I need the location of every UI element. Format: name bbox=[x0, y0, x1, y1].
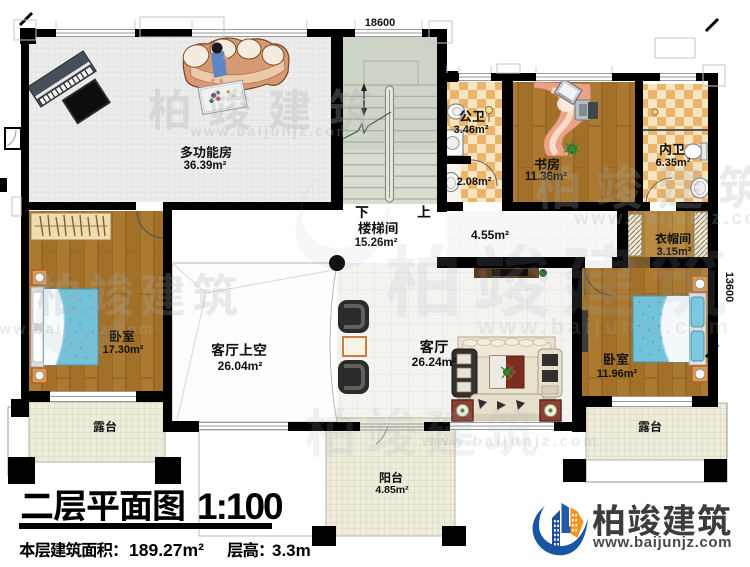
svg-text:www.baijunjz.com: www.baijunjz.com bbox=[592, 534, 732, 551]
svg-text:2.08m²: 2.08m² bbox=[457, 176, 492, 188]
svg-text:26.24m²: 26.24m² bbox=[412, 355, 457, 369]
svg-text:18600: 18600 bbox=[365, 17, 396, 29]
svg-text:3.3m: 3.3m bbox=[272, 541, 311, 560]
svg-text:3.46m²: 3.46m² bbox=[454, 124, 489, 136]
svg-text:www.baijunjz.com: www.baijunjz.com bbox=[573, 208, 750, 228]
svg-text:www.baijunjz.com: www.baijunjz.com bbox=[477, 314, 732, 339]
svg-text:4.85m²: 4.85m² bbox=[375, 484, 409, 496]
svg-text:26.04m²: 26.04m² bbox=[218, 359, 263, 373]
svg-text:www.baijunjz.com: www.baijunjz.com bbox=[421, 433, 599, 450]
svg-text:www.baijunjz.com: www.baijunjz.com bbox=[0, 321, 155, 338]
svg-text:4.55m²: 4.55m² bbox=[471, 228, 509, 242]
svg-text:1:100: 1:100 bbox=[197, 486, 283, 527]
svg-text:36.39m²: 36.39m² bbox=[184, 160, 227, 172]
svg-text:www.baijunjz.com: www.baijunjz.com bbox=[190, 123, 352, 139]
svg-text:13600: 13600 bbox=[723, 272, 735, 303]
svg-text:11.96m²: 11.96m² bbox=[597, 368, 638, 380]
svg-text:189.27m²: 189.27m² bbox=[129, 540, 204, 560]
